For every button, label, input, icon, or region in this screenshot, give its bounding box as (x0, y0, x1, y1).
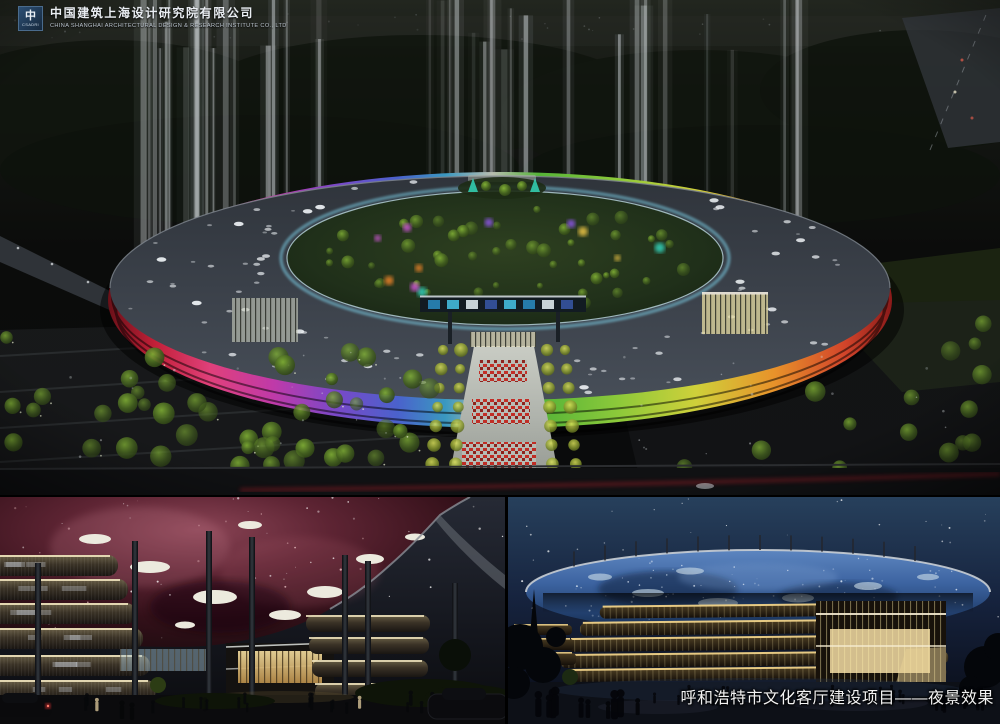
company-name-block: 中国建筑上海设计研究院有限公司 CHINA SHANGHAI ARCHITECT… (50, 6, 287, 30)
nebula-canopy-render (0, 497, 505, 724)
main-render-svg (0, 0, 1000, 495)
logo-glyph: 中 (25, 11, 36, 22)
main-aerial-render (0, 0, 1000, 495)
vignette (0, 0, 1000, 495)
company-name-en: CHINA SHANGHAI ARCHITECTURAL DESIGN & RE… (50, 22, 287, 30)
glass-hall (816, 601, 946, 683)
company-name-zh: 中国建筑上海设计研究院有限公司 (50, 6, 287, 20)
company-logo: 中 CSADRI 中国建筑上海设计研究院有限公司 CHINA SHANGHAI … (18, 6, 287, 31)
project-caption: 呼和浩特市文化客厅建设项目——夜景效果 (680, 684, 994, 708)
presentation-board: 中 CSADRI 中国建筑上海设计研究院有限公司 CHINA SHANGHAI … (0, 0, 1000, 724)
logo-subtext: CSADRI (22, 22, 39, 27)
nebula-render-svg (0, 497, 505, 724)
cscec-logo-icon: 中 CSADRI (18, 6, 43, 31)
